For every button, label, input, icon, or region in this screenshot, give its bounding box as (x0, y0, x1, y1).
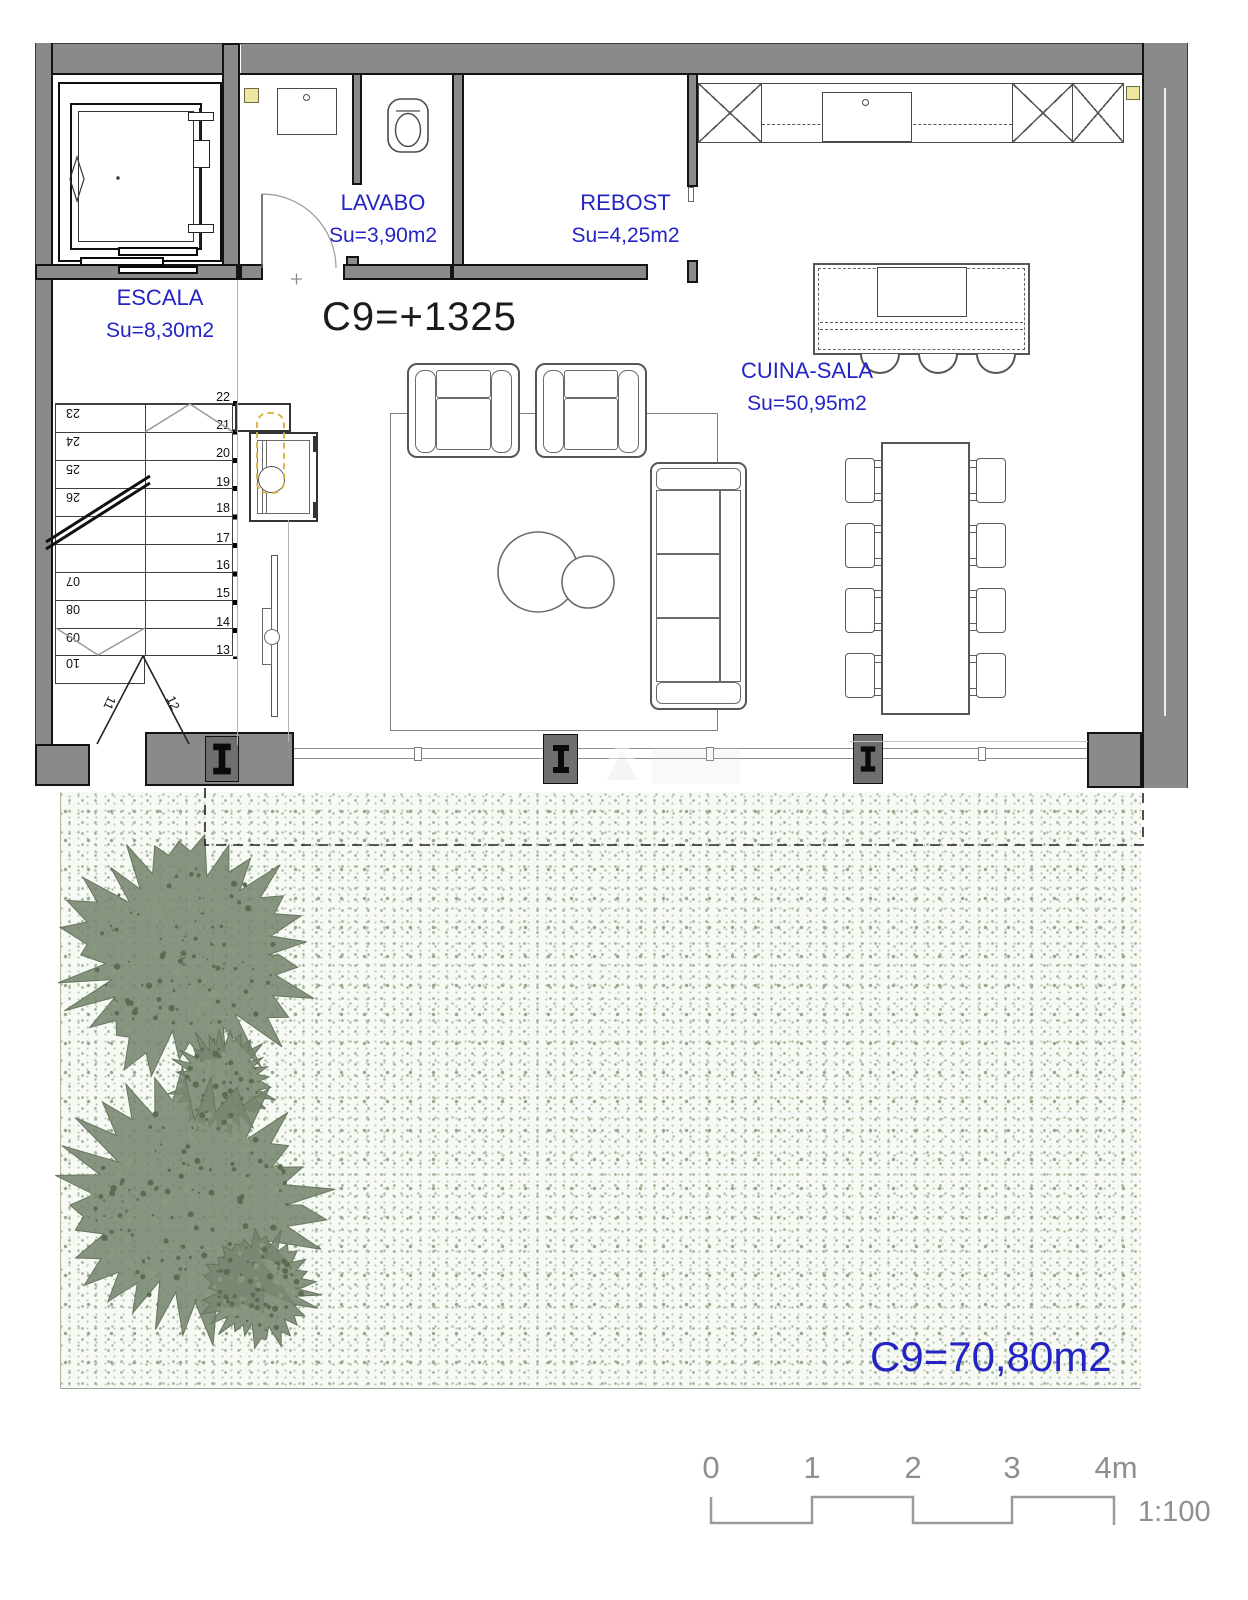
stair-number: 15 (206, 586, 230, 600)
dining-chair (845, 588, 875, 633)
dining-table (881, 442, 970, 715)
stair-number: 24 (56, 434, 80, 448)
cabinet-x (1072, 83, 1124, 143)
level-mark: C9=+1325 (322, 295, 517, 340)
room-name: ESCALA (95, 285, 225, 310)
wall-corner-bottom-left (35, 744, 90, 786)
stair-number: 10 (56, 656, 80, 670)
dining-chair (976, 523, 1006, 568)
armchair (535, 363, 647, 458)
dining-chair (976, 458, 1006, 503)
elevator-mechanism (188, 224, 214, 233)
elevator-door-panel (118, 266, 198, 274)
elevator-door-panel (118, 247, 198, 256)
armchair (407, 363, 520, 458)
stair-number: 11 (100, 694, 118, 712)
elevator-mechanism (188, 112, 214, 121)
wall-escala-right (222, 43, 240, 280)
wall-corner-bottom-right (1087, 732, 1142, 788)
scale-tick-label: 4m (1089, 1450, 1143, 1486)
scale-tick-label: 3 (997, 1450, 1027, 1486)
stair-number: 20 (206, 446, 230, 460)
wall-rebost-bottom (452, 264, 648, 280)
floor-plan: 23 24 25 26 07 08 09 10 22 21 20 19 18 1… (0, 0, 1248, 1600)
stair-number: 07 (56, 574, 80, 588)
room-name: CUINA-SALA (722, 358, 892, 383)
wall-lavabo-rebost (452, 73, 464, 280)
room-name: REBOST (558, 190, 693, 215)
sink-faucet (862, 99, 869, 106)
dining-chair (845, 523, 875, 568)
sofa (650, 462, 747, 710)
wall-lavabo-door-stub (240, 264, 263, 280)
room-area: Su=50,95m2 (722, 392, 892, 416)
dining-chair (976, 588, 1006, 633)
sink-faucet (303, 94, 310, 101)
steel-column-icon (543, 734, 578, 784)
stair-number: 16 (206, 558, 230, 572)
wall-right-seam (1164, 88, 1166, 716)
room-area: Su=4,25m2 (558, 224, 693, 248)
stair-number: 17 (206, 531, 230, 545)
elevator-door-panel (80, 257, 164, 266)
window-joint (414, 747, 422, 761)
stair-number: 13 (206, 643, 230, 657)
scale-ratio: 1:100 (1138, 1496, 1228, 1529)
stair-number: 19 (206, 475, 230, 489)
floor-line (237, 280, 238, 745)
light-switch (1126, 86, 1140, 100)
watermark (594, 735, 740, 786)
stair-number: 21 (206, 418, 230, 432)
light-switch (244, 88, 259, 103)
cabinet-x (1012, 83, 1074, 143)
dining-chair (976, 653, 1006, 698)
fireplace-tab (313, 502, 318, 518)
stair-number: 14 (206, 615, 230, 629)
terrace (60, 792, 1141, 1389)
room-name: LAVABO (318, 190, 448, 215)
wall-lavabo-bottom (343, 264, 452, 280)
room-label-cuina-sala: CUINA-SALA Su=50,95m2 (722, 358, 892, 416)
room-area: Su=3,90m2 (318, 224, 448, 248)
fireplace-tab (313, 436, 318, 452)
stair-number: 18 (206, 501, 230, 515)
toilet (388, 99, 428, 152)
scale-tick-label: 0 (696, 1450, 726, 1486)
stair-number: 23 (56, 406, 80, 420)
stove-dashed-outline (256, 412, 285, 494)
dining-chair (845, 458, 875, 503)
room-label-lavabo: LAVABO Su=3,90m2 (318, 190, 448, 248)
window-joint (706, 747, 714, 761)
elevator-mechanism (193, 140, 210, 168)
scale-tick-label: 1 (797, 1450, 827, 1486)
bar-stool (918, 354, 958, 374)
wall-left (35, 43, 53, 765)
terrace-area-label: C9=70,80m2 (870, 1333, 1112, 1381)
bar-stool (976, 354, 1016, 374)
stair-number: 26 (56, 490, 80, 504)
wall-rebost-stub (687, 260, 698, 283)
sliding-track-line (850, 741, 1088, 742)
window-glazing (578, 748, 853, 759)
door-stop (346, 256, 359, 266)
dining-chair (845, 653, 875, 698)
wall-lavabo-stub (352, 73, 362, 185)
cooktop (877, 267, 967, 317)
elevator-car-inner (78, 111, 194, 242)
cabinet-x (698, 83, 762, 143)
window-joint (978, 747, 986, 761)
tv-mount-hinge (264, 629, 280, 645)
wall-top (35, 43, 1188, 75)
stair-number: 25 (56, 462, 80, 476)
stair-number: 09 (56, 630, 80, 644)
scale-bar (711, 1497, 1114, 1525)
steel-column-icon (205, 736, 239, 782)
stair-number: 12 (164, 694, 183, 713)
scale-tick-label: 2 (898, 1450, 928, 1486)
room-label-rebost: REBOST Su=4,25m2 (558, 190, 693, 248)
plus-marker (291, 274, 302, 285)
stairs-divider (145, 403, 146, 656)
floor-line (288, 520, 289, 742)
stair-number: 08 (56, 602, 80, 616)
stair-number: 22 (206, 390, 230, 404)
room-area: Su=8,30m2 (95, 319, 225, 343)
island-dashed-band (820, 322, 1023, 330)
room-label-escala: ESCALA Su=8,30m2 (95, 285, 225, 343)
wall-kitchen-partition (687, 73, 698, 187)
